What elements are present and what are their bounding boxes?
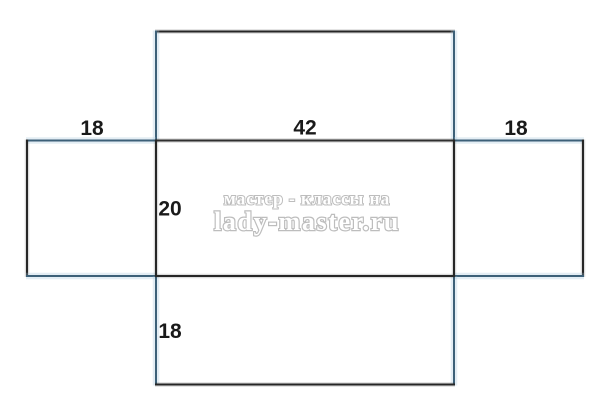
svg-text:42: 42 [293,117,316,140]
svg-text:lady-master.ru: lady-master.ru [214,207,400,236]
svg-text:18: 18 [80,117,104,140]
svg-text:мастер - классы на: мастер - классы на [224,189,390,209]
svg-text:18: 18 [504,117,528,140]
svg-text:20: 20 [158,198,181,221]
svg-text:18: 18 [158,320,182,343]
